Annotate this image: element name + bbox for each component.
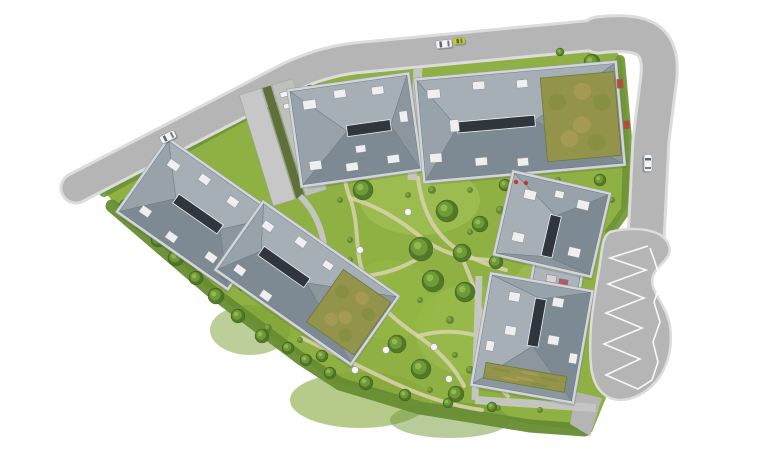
bush-inner [348,238,351,241]
tree [409,237,433,261]
garden-parasol [383,347,390,354]
tree [282,342,294,354]
bush-inner [468,188,471,191]
tree-highlight [284,344,288,348]
bush-inner [428,388,431,391]
roof-window [429,153,442,163]
roof-window [387,154,400,164]
bush [347,237,353,243]
bush [297,337,303,343]
roof-window [485,340,495,351]
tree-highlight [234,312,238,316]
tree-highlight [415,363,421,369]
tree-highlight [492,258,496,262]
play-equipment [514,180,518,184]
tree [208,288,224,304]
roof-window [302,99,316,110]
bush-inner [497,207,501,211]
car-rear-window [645,167,651,169]
tree-highlight [211,291,216,296]
car-north-road-white [436,39,454,50]
tree [556,48,564,56]
tree [455,282,475,302]
roof-window [346,162,359,172]
roof-window [517,157,529,166]
tree-highlight [326,369,330,373]
building-north-east [414,60,634,186]
roof-accent [617,79,624,88]
roof-window [427,89,441,99]
building-north-west [287,72,425,190]
garden-parasol [431,344,438,351]
car-windshield [645,158,651,161]
roof-accent [623,120,630,128]
tree-highlight [414,242,422,250]
roof-window [516,79,528,88]
bush-inner [453,353,456,356]
tree-highlight [445,400,448,403]
garden-parasol [357,247,364,254]
car-body [436,39,453,49]
tree-highlight [587,57,592,62]
roof-window [475,157,488,166]
site-plan-svg [0,0,769,470]
tree-highlight [440,204,447,211]
garden-parasol [446,376,453,383]
roof-window [472,81,485,90]
tree [443,398,453,408]
tree-highlight [362,379,366,383]
garden-parasol [352,367,359,374]
car-windshield [456,39,459,44]
tree [255,329,269,343]
bush-inner [298,338,301,341]
tree-highlight [302,356,306,360]
bush [427,387,433,393]
tree [324,367,336,379]
roof-window [309,160,322,171]
bush [417,297,423,303]
tree [388,335,406,353]
roof-window [547,335,559,346]
tree [399,389,411,401]
bush-inner [467,367,471,371]
tree-highlight [401,391,405,395]
tree-highlight [558,50,561,53]
roof-window [552,297,564,308]
tree [594,174,606,186]
tree-highlight [318,352,322,356]
bush-inner [338,198,341,201]
tree-highlight [457,248,463,254]
bush [428,186,436,194]
building-east-lower [469,272,595,407]
tree [300,354,312,366]
bush [405,192,411,198]
car-north-road-yellow [453,37,467,46]
bush-inner [468,230,471,233]
roof-window [333,89,346,99]
bush-inner [447,317,451,321]
roof-window [371,86,384,96]
bush-inner [418,298,421,301]
bush-inner [429,187,433,191]
tree-highlight [475,219,480,224]
bush-inner [265,325,269,329]
roof-window [355,145,366,153]
bush-inner [538,408,541,411]
bush-inner [406,193,409,196]
tree-highlight [392,339,398,345]
site-plan-image [0,0,769,470]
tree-highlight [501,181,505,185]
roof-window [450,119,460,132]
turning-area [590,229,671,400]
roof-window [508,291,520,302]
tree [436,200,458,222]
tree [411,359,431,379]
bush [337,197,343,203]
tree-highlight [357,184,363,190]
car-east-road [643,155,653,173]
tree [453,244,471,262]
tree-highlight [451,389,456,394]
play-equipment [524,181,528,185]
tree-highlight [258,332,262,336]
tree [231,309,245,323]
tree [353,180,373,200]
tree-highlight [459,286,465,292]
tree-highlight [489,404,492,407]
bush [452,352,458,358]
roof-window [399,111,408,123]
bush [467,187,473,193]
tree-highlight [596,176,600,180]
tree-highlight [426,274,433,281]
tree [359,376,373,390]
bush [446,316,454,324]
tree [422,270,444,292]
roof-window [504,325,516,336]
roof-window [568,353,578,364]
tree [316,350,328,362]
tree-highlight [192,274,196,278]
bush [467,229,473,235]
tree [472,216,488,232]
bush [537,407,543,413]
garden-parasol [405,209,412,216]
tree [487,402,497,412]
